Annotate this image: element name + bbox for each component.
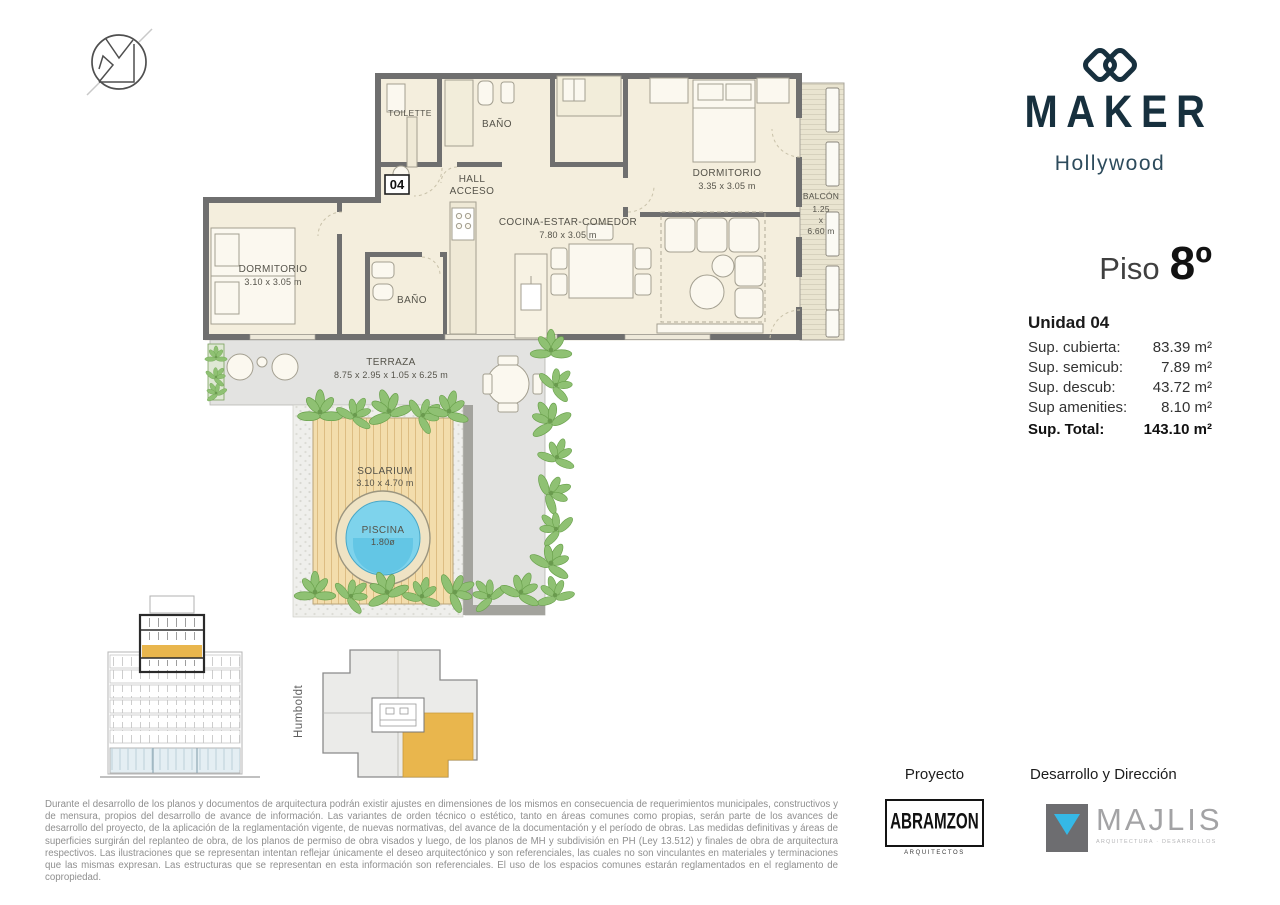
abramzon-logo: ABRAMZON (885, 799, 984, 847)
label-balcon-d2: x (819, 215, 824, 225)
proyecto-label: Proyecto (885, 766, 984, 783)
apartment-floor-plan: 04 TOILETTE BAÑO HALL ACCESO DORMITORIO … (195, 62, 885, 622)
majlis-sub: ARQUITECTURA · DESARROLLOS (1096, 839, 1223, 845)
majlis-logo: MAJLIS ARQUITECTURA · DESARROLLOS (1046, 804, 1223, 852)
unit-badge-number: 04 (390, 177, 405, 192)
brand-location: Hollywood (1020, 152, 1200, 176)
key-plan: Humboldt (288, 642, 488, 782)
unit-surface-table: Unidad 04 Sup. cubierta:83.39 m² Sup. se… (1028, 313, 1212, 441)
majlis-logo-icon (1046, 804, 1088, 852)
label-dorm1: DORMITORIO (693, 168, 762, 179)
label-dorm1-dim: 3.35 x 3.05 m (698, 181, 755, 191)
table-row: Sup amenities:8.10 m² (1028, 399, 1212, 416)
label-balcon-d3: 6.60 m (807, 226, 834, 236)
highlighted-floor-box (140, 615, 204, 672)
label-solarium: SOLARIUM (357, 466, 412, 477)
label-terraza: TERRAZA (366, 357, 415, 368)
table-row: Sup. cubierta:83.39 m² (1028, 339, 1212, 356)
label-solarium-dim: 3.10 x 4.70 m (356, 478, 413, 488)
label-cocina-dim: 7.80 x 3.05 m (539, 230, 596, 240)
label-dorm2-dim: 3.10 x 3.05 m (244, 277, 301, 287)
label-dorm2: DORMITORIO (239, 264, 308, 275)
street-label: Humboldt (293, 684, 305, 738)
floor-plan-sheet: 04 TOILETTE BAÑO HALL ACCESO DORMITORIO … (0, 0, 1280, 905)
label-balcon: BALCÓN (803, 191, 839, 201)
label-bano1: BAÑO (482, 117, 512, 130)
label-balcon-d1: 1.25 (812, 204, 829, 214)
unit-title: Unidad 04 (1028, 313, 1212, 333)
label-hall-2: ACCESO (450, 186, 495, 197)
building-elevation (100, 590, 275, 785)
label-toilette: TOILETTE (388, 108, 432, 118)
brand-name: MAKER (1025, 86, 1196, 138)
label-hall-1: HALL (459, 174, 486, 185)
label-terraza-dim: 8.75 x 2.95 x 1.05 x 6.25 m (334, 370, 448, 380)
unit-number-badge: 04 (385, 175, 409, 194)
label-cocina: COCINA-ESTAR-COMEDOR (499, 217, 637, 228)
core (372, 698, 424, 732)
desarrollo-label: Desarrollo y Dirección (1030, 766, 1177, 783)
legal-disclaimer: Durante el desarrollo de los planos y do… (45, 799, 838, 885)
north-compass-icon (82, 25, 157, 100)
table-row: Sup. semicub:7.89 m² (1028, 359, 1212, 376)
abramzon-sub: ARQUITECTOS (885, 850, 984, 856)
table-row: Sup. descub:43.72 m² (1028, 379, 1212, 396)
floor-title: Piso8º (1018, 236, 1212, 290)
floor-number: 8º (1170, 237, 1212, 289)
label-bano2: BAÑO (397, 293, 427, 306)
label-piscina: PISCINA (362, 525, 405, 536)
label-piscina-dim: 1.80ø (371, 537, 395, 547)
abramzon-name: ABRAMZON (890, 810, 979, 835)
table-row-total: Sup. Total:143.10 m² (1028, 421, 1212, 438)
majlis-name: MAJLIS (1096, 804, 1223, 835)
floor-label: Piso (1099, 251, 1159, 286)
